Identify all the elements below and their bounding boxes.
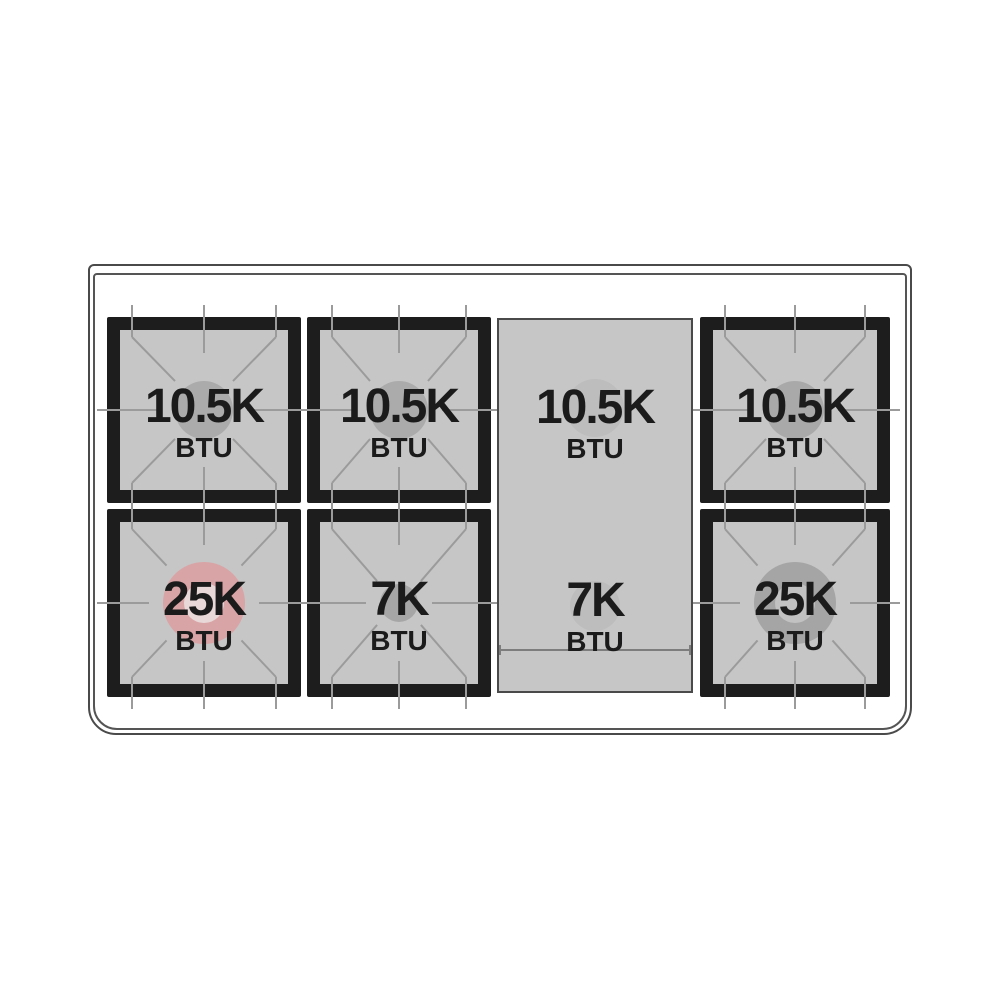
burner-grate: [307, 509, 491, 697]
burner-grate: [700, 509, 890, 697]
griddle: 10.5K BTU 7K BTU: [497, 318, 693, 693]
burner-rear-right: 10.5K BTU: [700, 317, 890, 503]
burner-front-center-left: 7K BTU: [307, 509, 491, 697]
burner-grate: [700, 317, 890, 503]
burner-cap: [380, 584, 418, 622]
cooktop-diagram: 10.5K BTU 10.5K BTU 10.5K BTU: [0, 0, 1000, 1000]
burner-front-left: 25K BTU: [107, 509, 301, 697]
burner-rear-left: 10.5K BTU: [107, 317, 301, 503]
burner-cap-center: [184, 583, 224, 623]
burner-cap: [766, 381, 824, 439]
burner-rear-center-left: 10.5K BTU: [307, 317, 491, 503]
burner-cap-center: [775, 583, 815, 623]
burner-grate: [107, 509, 301, 697]
griddle-plate: [497, 318, 693, 693]
burner-grate: [107, 317, 301, 503]
burner-cap: [370, 381, 428, 439]
burner-cap: [175, 381, 233, 439]
griddle-front-cap: [570, 581, 620, 631]
griddle-rear-cap: [566, 379, 624, 437]
burner-grate: [307, 317, 491, 503]
burner-front-right: 25K BTU: [700, 509, 890, 697]
